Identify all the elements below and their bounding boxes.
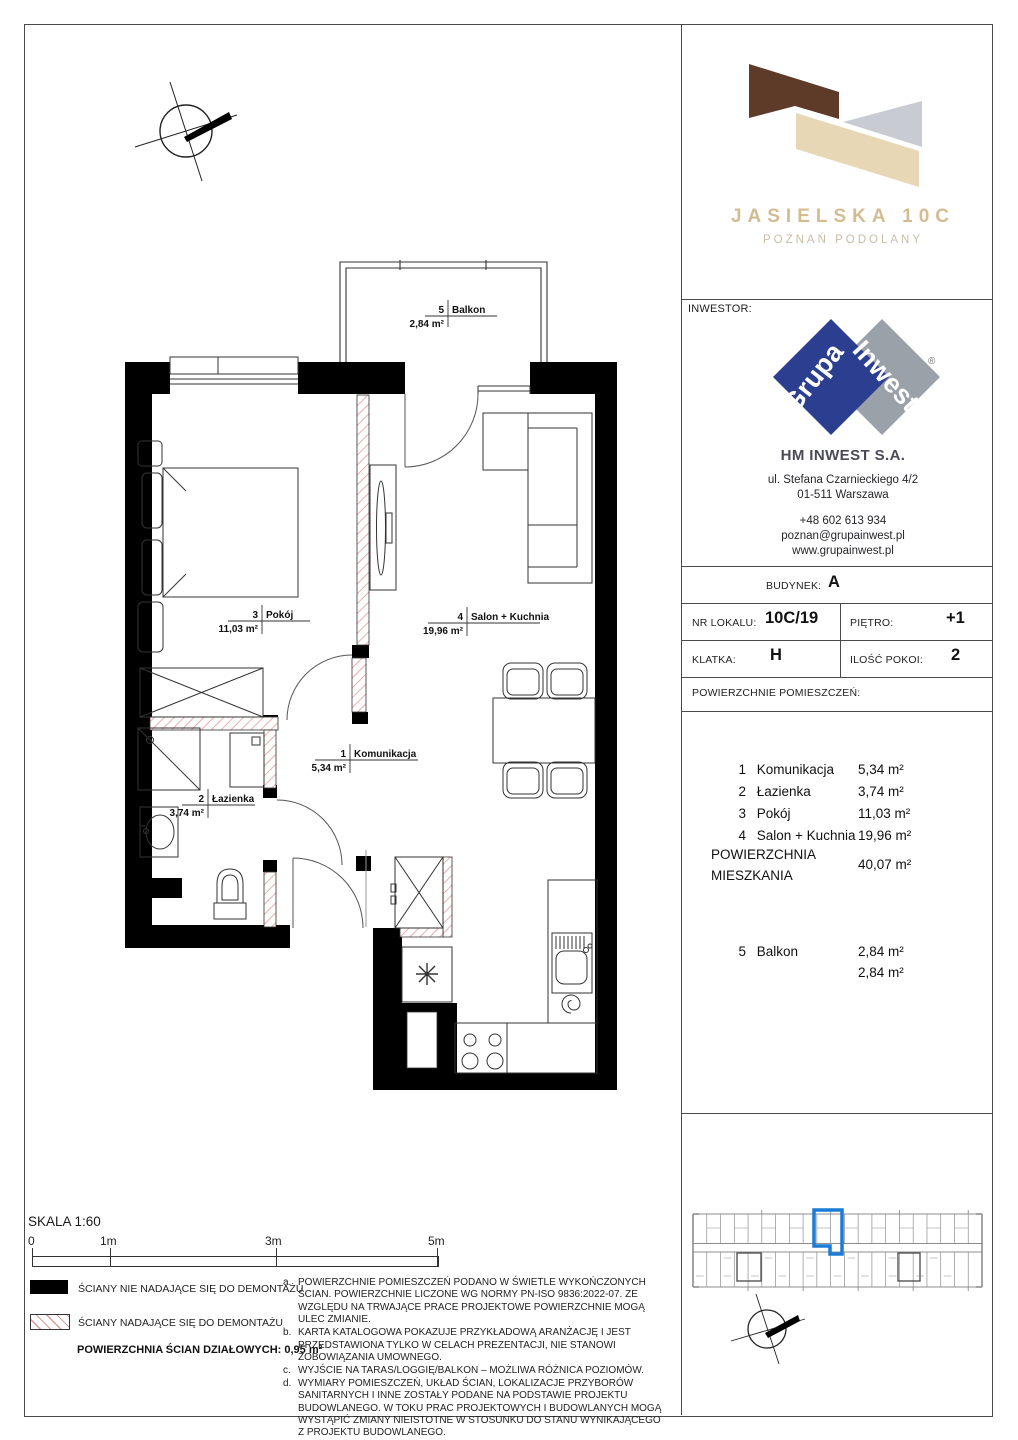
scale-bar xyxy=(32,1256,439,1267)
bed xyxy=(142,468,298,597)
area-row: 2 Łazienka xyxy=(730,784,811,799)
rooms-count-label: ILOŚĆ POKOI: xyxy=(850,654,923,666)
map-detail-block-2 xyxy=(898,1253,920,1281)
legend-hatch-label: ŚCIANY NADAJĄCE SIĘ DO DEMONTAŻU xyxy=(78,1317,283,1329)
svg-text:2,84 m²: 2,84 m² xyxy=(410,319,445,330)
right-panel-divider xyxy=(681,24,682,1415)
wardrobe-hall xyxy=(391,857,443,928)
bedroom-window xyxy=(170,357,298,384)
note-a: a. POWIERZCHNIE POMIESZCZEŃ PODANO W ŚWI… xyxy=(283,1277,663,1327)
svg-text:Pokój: Pokój xyxy=(266,610,293,621)
bedroom-door-arc xyxy=(287,655,352,720)
svg-text:5: 5 xyxy=(438,305,444,316)
washing-machine xyxy=(230,733,264,787)
corner-sofa xyxy=(483,413,592,583)
area-value: 19,96 m² xyxy=(858,828,911,843)
investor-address-1: ul. Stefana Czarnieckiego 4/2 xyxy=(700,474,986,486)
lokal-label: NR LOKALU: xyxy=(692,617,756,629)
scale-tick-5m: 5m xyxy=(428,1234,445,1248)
area-value: 5,34 m² xyxy=(858,762,904,777)
divider-row1 xyxy=(681,603,992,604)
note-d: d. WYMIARY POMIESZCZEŃ, UKŁAD ŚCIAN, LOK… xyxy=(283,1378,663,1440)
investor-email: poznan@grupainwest.pl xyxy=(700,530,986,542)
total-area-value: 40,07 m² xyxy=(858,857,911,872)
notes-block: a. POWIERZCHNIE POMIESZCZEŃ PODANO W ŚWI… xyxy=(283,1277,663,1440)
divider-row4 xyxy=(681,711,992,712)
dining-table xyxy=(493,698,595,763)
investor-address-2: 01-511 Warszawa xyxy=(700,489,986,501)
staircase-label: KLATKA: xyxy=(692,654,736,666)
investor-logo: Grupa Inwest ® xyxy=(755,310,945,445)
building-overview-map xyxy=(685,1195,995,1370)
legend-hatch-swatch xyxy=(30,1314,70,1330)
wardrobe-bedroom xyxy=(140,668,263,717)
balcony-door-arc xyxy=(405,394,478,467)
investor-website: www.grupainwest.pl xyxy=(700,545,986,557)
balcony-value: 2,84 m² xyxy=(858,944,904,959)
compass-north-icon xyxy=(135,82,237,181)
note-b: b. KARTA KATALOGOWA POKAZUJE PRZYKŁADOWĄ… xyxy=(283,1327,663,1364)
svg-text:Salon + Kuchnia: Salon + Kuchnia xyxy=(471,612,550,623)
brand-logo xyxy=(740,40,940,200)
bathroom-door-arc xyxy=(277,800,342,865)
area-value: 11,03 m² xyxy=(858,806,910,821)
total-area-label-2: MIESZKANIA xyxy=(711,868,793,883)
divider-logo-investor xyxy=(681,299,992,300)
scale-tick-3m: 3m xyxy=(265,1234,282,1248)
entrance-door-arc xyxy=(293,858,363,928)
svg-text:3,74 m²: 3,74 m² xyxy=(170,808,205,819)
label-komunikacja: 1 Komunikacja 5,34 m² xyxy=(312,744,418,774)
registered-mark: ® xyxy=(928,356,936,367)
areas-header: POWIERZCHNIE POMIESZCZEŃ: xyxy=(692,687,860,699)
label-balkon: 5 Balkon 2,84 m² xyxy=(410,300,497,330)
kitchen-sink xyxy=(552,933,592,993)
legend-solid-swatch xyxy=(30,1280,68,1294)
demountable-walls xyxy=(150,395,452,937)
kitchen-counter xyxy=(455,880,597,1073)
svg-text:Balkon: Balkon xyxy=(452,305,485,316)
balcony-row: 5 Balkon xyxy=(730,944,798,959)
balcony-total-value: 2,84 m² xyxy=(858,965,904,980)
svg-text:5,34 m²: 5,34 m² xyxy=(312,763,347,774)
catalog-card-page: 5 Balkon 2,84 m² 3 Pokój 11,03 m² 4 Salo… xyxy=(0,0,1018,1440)
label-pokoj: 3 Pokój 11,03 m² xyxy=(219,605,310,635)
stove xyxy=(455,1023,507,1073)
scale-tick-0: 0 xyxy=(28,1234,35,1248)
project-title: JASIELSKA 10C xyxy=(700,206,986,228)
investor-name: HM INWEST S.A. xyxy=(700,447,986,464)
project-subtitle: POZNAŃ PODOLANY xyxy=(700,234,986,246)
scale-label: SKALA 1:60 xyxy=(28,1214,101,1229)
drain-spiral-icon xyxy=(562,995,580,1013)
svg-text:2: 2 xyxy=(198,794,204,805)
kitchen-shaft-niche xyxy=(407,1012,437,1068)
brand-logo-brown-shape xyxy=(749,64,839,119)
door-swings xyxy=(277,394,478,928)
label-lazienka: 2 Łazienka 3,74 m² xyxy=(170,789,255,819)
map-detail-block-1 xyxy=(737,1253,761,1281)
scale-tick-1m: 1m xyxy=(100,1234,117,1248)
svg-text:4: 4 xyxy=(457,612,463,623)
area-value: 3,74 m² xyxy=(858,784,904,799)
floor-plan: 5 Balkon 2,84 m² 3 Pokój 11,03 m² 4 Salo… xyxy=(100,60,680,1140)
svg-text:3: 3 xyxy=(252,610,258,621)
floor-label: PIĘTRO: xyxy=(850,617,893,629)
rooms-count-value: 2 xyxy=(951,646,960,665)
note-c: c. WYJŚCIE NA TARAS/LOGGIĘ/BALKON – MOŻL… xyxy=(283,1365,663,1377)
unit-location-highlight xyxy=(814,1210,842,1254)
svg-text:19,96 m²: 19,96 m² xyxy=(423,626,464,637)
lokal-value: 10C/19 xyxy=(765,609,818,628)
building-label: BUDYNEK: xyxy=(766,580,821,592)
toilet xyxy=(214,869,246,919)
staircase-value: H xyxy=(770,646,782,665)
legend-solid-label: ŚCIANY NIE NADAJĄCE SIĘ DO DEMONTAŻU xyxy=(78,1283,303,1295)
fridge xyxy=(402,947,452,1002)
area-row: 3 Pokój xyxy=(730,806,791,821)
divider-list-map xyxy=(681,1113,992,1114)
svg-text:11,03 m²: 11,03 m² xyxy=(219,624,259,635)
area-row: 4 Salon + Kuchnia xyxy=(730,828,855,843)
svg-text:Komunikacja: Komunikacja xyxy=(354,749,417,760)
compass-south-icon xyxy=(731,1294,805,1364)
svg-text:Łazienka: Łazienka xyxy=(212,794,255,805)
divider-investor-table xyxy=(681,566,992,567)
divider-row3 xyxy=(681,677,992,678)
investor-phone: +48 602 613 934 xyxy=(700,515,986,527)
area-row: 1 Komunikacja xyxy=(730,762,834,777)
divider-row2 xyxy=(681,640,992,641)
floor-value: +1 xyxy=(946,609,965,628)
tv-unit xyxy=(370,465,396,590)
investor-label: INWESTOR: xyxy=(688,303,752,315)
building-value: A xyxy=(828,573,840,592)
label-salon: 4 Salon + Kuchnia 19,96 m² xyxy=(423,607,550,637)
svg-text:1: 1 xyxy=(340,749,346,760)
balcony-glazing xyxy=(478,386,530,394)
total-area-label-1: POWIERZCHNIA xyxy=(711,847,816,862)
table-mid-divider xyxy=(840,603,841,677)
